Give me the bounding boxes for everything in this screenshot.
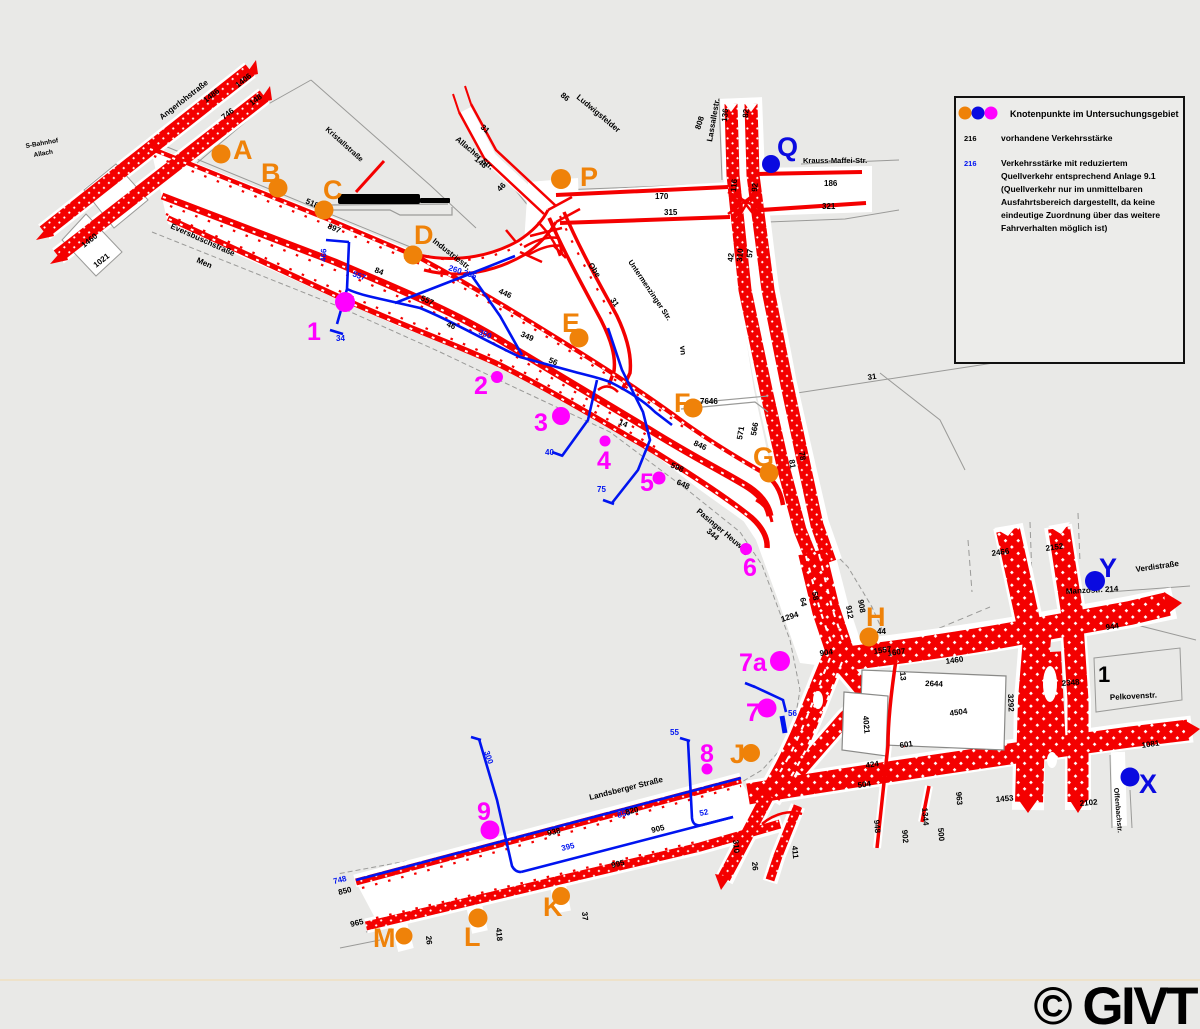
svg-text:37: 37 <box>580 911 590 921</box>
svg-text:Ausfahrtsbereich dargestellt,: Ausfahrtsbereich dargestellt, da keine <box>1001 197 1155 207</box>
svg-text:F: F <box>674 388 691 418</box>
svg-text:116: 116 <box>729 178 739 192</box>
svg-text:H: H <box>866 602 886 632</box>
svg-text:vn: vn <box>678 345 688 355</box>
svg-text:136: 136 <box>720 108 730 123</box>
svg-text:eindeutige Zuordnung über das: eindeutige Zuordnung über das weitere <box>1001 210 1160 220</box>
svg-text:321: 321 <box>822 202 836 211</box>
svg-text:310: 310 <box>731 839 741 854</box>
svg-text:L: L <box>464 922 481 952</box>
svg-text:82: 82 <box>741 108 751 118</box>
svg-text:26: 26 <box>424 935 434 945</box>
svg-text:216: 216 <box>964 159 977 168</box>
svg-text:A: A <box>233 135 253 165</box>
svg-text:D: D <box>414 220 434 250</box>
svg-text:Verkehrsstärke mit reduziertem: Verkehrsstärke mit reduziertem <box>1001 158 1128 168</box>
svg-text:1453: 1453 <box>995 793 1014 804</box>
svg-text:92: 92 <box>750 182 760 192</box>
svg-text:418: 418 <box>494 927 504 942</box>
svg-text:2348: 2348 <box>1061 677 1080 688</box>
svg-text:X: X <box>1139 769 1157 799</box>
svg-text:315: 315 <box>664 208 678 217</box>
svg-text:13: 13 <box>898 671 908 681</box>
svg-text:2: 2 <box>474 372 488 400</box>
svg-text:500: 500 <box>936 827 946 842</box>
svg-text:vorhandene Verkehrsstärke: vorhandene Verkehrsstärke <box>1001 133 1113 143</box>
svg-text:944: 944 <box>1105 621 1120 632</box>
svg-text:3: 3 <box>534 409 548 437</box>
svg-text:G: G <box>753 442 774 472</box>
svg-text:5: 5 <box>640 469 654 497</box>
svg-text:J: J <box>730 739 745 769</box>
svg-text:55: 55 <box>670 728 679 737</box>
svg-text:Knotenpunkte im Untersuchungsg: Knotenpunkte im Untersuchungsgebiet <box>1010 109 1179 119</box>
svg-text:948: 948 <box>872 819 882 834</box>
svg-text:Y: Y <box>1099 553 1117 583</box>
svg-text:Fahrverhalten möglich ist): Fahrverhalten möglich ist) <box>1001 223 1107 233</box>
svg-text:E: E <box>562 308 580 338</box>
svg-text:466: 466 <box>319 248 328 262</box>
svg-text:4: 4 <box>597 447 611 475</box>
svg-text:1344: 1344 <box>920 807 931 826</box>
svg-text:Q: Q <box>777 132 798 162</box>
svg-text:C: C <box>323 175 343 205</box>
svg-text:963: 963 <box>954 791 964 806</box>
svg-text:186: 186 <box>824 179 838 188</box>
svg-text:6: 6 <box>743 554 757 582</box>
svg-text:M: M <box>373 923 396 953</box>
svg-text:7a: 7a <box>739 649 768 677</box>
svg-text:57: 57 <box>745 248 755 258</box>
svg-text:2102: 2102 <box>1079 797 1098 808</box>
svg-text:P: P <box>580 162 598 192</box>
svg-text:504: 504 <box>857 779 872 790</box>
svg-text:(Quellverkehr nur im unmittelb: (Quellverkehr nur im unmittelbaren <box>1001 184 1143 194</box>
svg-text:31: 31 <box>867 372 878 382</box>
svg-text:902: 902 <box>900 829 910 844</box>
svg-text:7: 7 <box>746 699 760 727</box>
svg-text:9: 9 <box>477 798 491 826</box>
svg-text:8: 8 <box>700 740 714 768</box>
svg-text:411: 411 <box>790 845 800 859</box>
svg-text:2644: 2644 <box>925 679 944 689</box>
svg-text:310: 310 <box>735 248 745 263</box>
svg-text:Krauss-Maffei-Str.: Krauss-Maffei-Str. <box>803 156 867 165</box>
svg-text:K: K <box>543 892 563 922</box>
svg-text:© GIVT: © GIVT <box>1034 977 1199 1029</box>
svg-text:216: 216 <box>964 134 977 143</box>
svg-text:7646: 7646 <box>700 397 718 406</box>
svg-text:1: 1 <box>307 318 321 346</box>
svg-text:Quellverkehr entsprechend Anla: Quellverkehr entsprechend Anlage 9.1 <box>1001 171 1156 181</box>
svg-text:904: 904 <box>819 647 834 658</box>
svg-text:26: 26 <box>750 861 760 871</box>
svg-text:601: 601 <box>899 739 914 750</box>
svg-text:3292: 3292 <box>1006 694 1016 713</box>
svg-text:56: 56 <box>788 709 797 718</box>
svg-text:75: 75 <box>597 485 606 494</box>
svg-text:4021: 4021 <box>861 715 872 734</box>
svg-text:40: 40 <box>545 448 554 457</box>
svg-text:1: 1 <box>1098 662 1110 687</box>
svg-text:424: 424 <box>865 759 880 770</box>
svg-text:34: 34 <box>336 334 345 343</box>
svg-text:B: B <box>261 158 281 188</box>
svg-text:170: 170 <box>655 192 669 201</box>
